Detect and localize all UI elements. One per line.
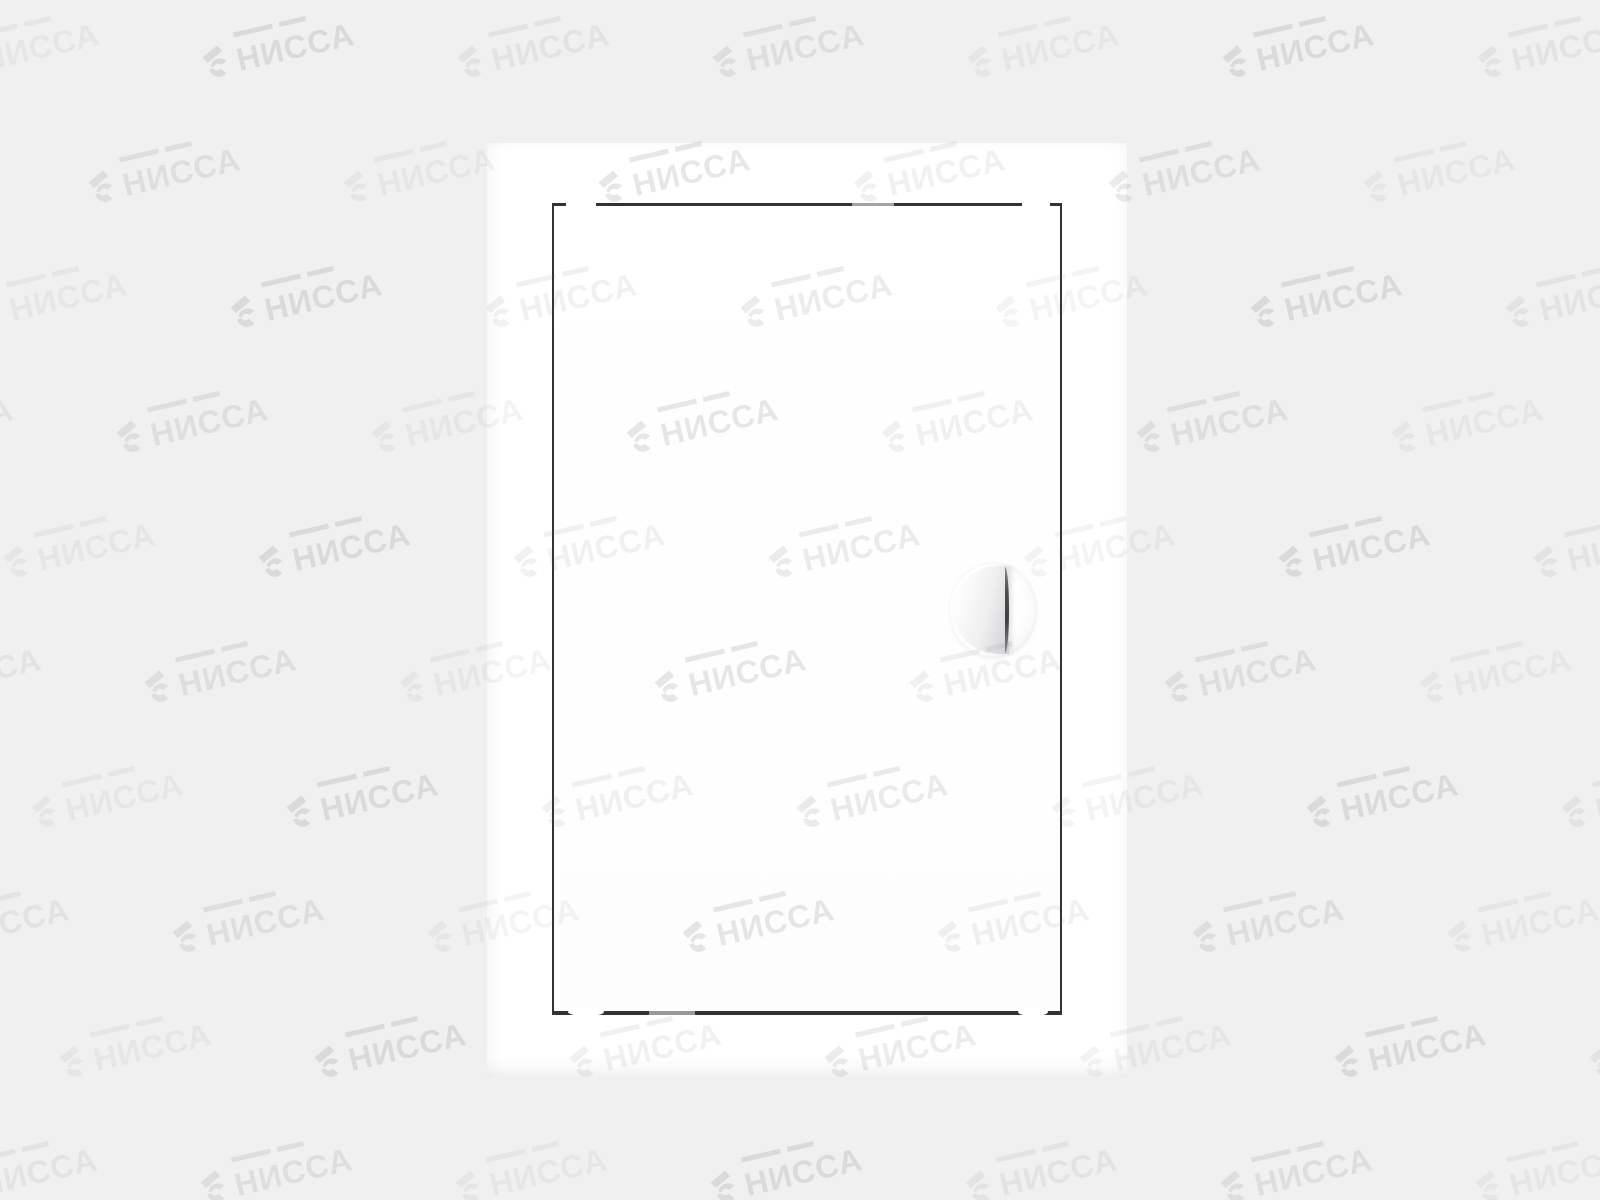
watermark-bar xyxy=(0,16,51,37)
watermark-bar xyxy=(203,891,276,912)
watermark-tile: НИССА xyxy=(0,383,16,459)
watermark-text: НИССА xyxy=(1282,268,1406,326)
watermark-tile: НИССА xyxy=(195,1133,355,1200)
watermark-tile: НИССА xyxy=(0,633,44,709)
nissa-logo-icon xyxy=(395,663,433,709)
watermark-text: НИССА xyxy=(1423,393,1547,451)
nissa-logo-icon xyxy=(84,163,122,209)
watermark-tile: НИССА xyxy=(1472,8,1600,84)
nissa-logo-icon xyxy=(254,538,292,584)
nissa-logo-icon xyxy=(1132,413,1170,459)
watermark-text: НИССА xyxy=(1395,143,1519,201)
watermark-bar xyxy=(1281,266,1354,287)
watermark-bar xyxy=(345,1016,418,1037)
nissa-logo-icon xyxy=(55,1038,93,1084)
watermark-tile: НИССА xyxy=(253,508,413,584)
nissa-logo-icon xyxy=(1330,1038,1368,1084)
watermark-text: НИССА xyxy=(1338,768,1462,826)
watermark-tile: НИССА xyxy=(1470,1133,1600,1200)
nissa-logo-icon xyxy=(1359,163,1397,209)
nissa-logo-icon xyxy=(1387,413,1425,459)
watermark-tile: НИССА xyxy=(705,1133,865,1200)
watermark-bar xyxy=(1592,766,1600,787)
watermark-text: НИССА xyxy=(1254,18,1378,76)
nissa-logo-icon xyxy=(1302,788,1340,834)
watermark-bar xyxy=(233,16,306,37)
watermark-tile: НИССА xyxy=(281,758,441,834)
nissa-logo-icon xyxy=(1415,663,1453,709)
watermark-bar xyxy=(0,1141,49,1162)
watermark-text: НИССА xyxy=(1168,393,1292,451)
watermark-text: НИССА xyxy=(1366,1018,1490,1076)
watermark-bar xyxy=(374,141,447,162)
nissa-logo-icon xyxy=(367,413,405,459)
watermark-text: НИССА xyxy=(1310,518,1434,576)
nissa-logo-icon xyxy=(310,1038,348,1084)
watermark-bar xyxy=(1536,266,1600,287)
watermark-bar xyxy=(317,766,390,787)
watermark-tile: НИССА xyxy=(1386,383,1546,459)
watermark-tile: НИССА xyxy=(1358,133,1518,209)
watermark-text: НИССА xyxy=(487,1143,611,1200)
watermark-text: НИССА xyxy=(1140,143,1264,201)
watermark-tile: НИССА xyxy=(1215,1133,1375,1200)
watermark-text: НИССА xyxy=(204,893,328,951)
watermark-bar xyxy=(1167,391,1240,412)
nissa-logo-icon xyxy=(423,913,461,959)
watermark-tile: НИССА xyxy=(1500,258,1600,334)
watermark-tile: НИССА xyxy=(26,758,186,834)
nissa-logo-icon xyxy=(0,538,37,584)
watermark-tile: НИССА xyxy=(1217,8,1377,84)
nissa-logo-icon xyxy=(706,1163,744,1200)
nissa-logo-icon xyxy=(226,288,264,334)
watermark-text: НИССА xyxy=(262,268,386,326)
watermark-tile: НИССА xyxy=(1159,633,1319,709)
seam-highlight xyxy=(649,1010,695,1016)
watermark-tile: НИССА xyxy=(197,8,357,84)
watermark-bar xyxy=(231,1141,304,1162)
seam-highlight xyxy=(1022,202,1050,208)
nissa-logo-icon xyxy=(708,38,746,84)
watermark-text: НИССА xyxy=(232,1143,356,1200)
nissa-logo-icon xyxy=(451,1163,489,1200)
nissa-logo-icon xyxy=(198,38,236,84)
watermark-text: НИССА xyxy=(176,643,300,701)
watermark-text: НИССА xyxy=(1224,893,1348,951)
watermark-tile: НИССА xyxy=(1103,133,1263,209)
watermark-bar xyxy=(1564,516,1600,537)
watermark-bar xyxy=(1422,391,1495,412)
watermark-text: НИССА xyxy=(0,643,44,701)
watermark-tile: НИССА xyxy=(54,1008,214,1084)
watermark-text: НИССА xyxy=(0,18,102,76)
watermark-text: НИССА xyxy=(1479,893,1600,951)
nissa-logo-icon xyxy=(27,788,65,834)
watermark-tile: НИССА xyxy=(1584,1008,1600,1084)
watermark-text: НИССА xyxy=(0,893,72,951)
watermark-bar xyxy=(119,141,192,162)
watermark-tile: НИССА xyxy=(167,883,327,959)
watermark-tile: НИССА xyxy=(0,8,102,84)
watermark-tile: НИССА xyxy=(83,133,243,209)
nissa-logo-icon xyxy=(1501,288,1539,334)
image-canvas: НИССАНИССАНИССАНИССАНИССАНИССАНИССАНИССА… xyxy=(0,0,1600,1200)
watermark-text: НИССА xyxy=(1451,643,1575,701)
nissa-logo-icon xyxy=(961,1163,999,1200)
seam-highlight xyxy=(566,202,596,208)
watermark-text: НИССА xyxy=(489,18,613,76)
watermark-text: НИССА xyxy=(375,143,499,201)
watermark-text: НИССА xyxy=(290,518,414,576)
watermark-text: НИССА xyxy=(35,518,159,576)
nissa-logo-icon xyxy=(1585,1038,1600,1084)
nissa-logo-icon xyxy=(339,163,377,209)
watermark-bar xyxy=(1394,141,1467,162)
watermark-tile: НИССА xyxy=(1414,633,1574,709)
watermark-bar xyxy=(1337,766,1410,787)
watermark-text: НИССА xyxy=(0,393,16,451)
watermark-text: НИССА xyxy=(997,1143,1121,1200)
watermark-bar xyxy=(998,16,1071,37)
watermark-bar xyxy=(34,516,107,537)
nissa-logo-icon xyxy=(196,1163,234,1200)
nissa-logo-icon xyxy=(282,788,320,834)
watermark-text: НИССА xyxy=(318,768,442,826)
watermark-tile: НИССА xyxy=(0,258,130,334)
nissa-logo-icon xyxy=(453,38,491,84)
watermark-text: НИССА xyxy=(148,393,272,451)
nissa-logo-icon xyxy=(1216,1163,1254,1200)
nissa-logo-icon xyxy=(1557,788,1595,834)
watermark-tile: НИССА xyxy=(309,1008,469,1084)
nissa-logo-icon xyxy=(1274,538,1312,584)
watermark-bar xyxy=(1251,1141,1324,1162)
watermark-text: НИССА xyxy=(1509,18,1600,76)
watermark-text: НИССА xyxy=(120,143,244,201)
watermark-bar xyxy=(1478,891,1551,912)
watermark-bar xyxy=(1195,641,1268,662)
watermark-bar xyxy=(1253,16,1326,37)
nissa-logo-icon xyxy=(1188,913,1226,959)
watermark-bar xyxy=(488,16,561,37)
watermark-tile: НИССА xyxy=(0,1133,100,1200)
watermark-bar xyxy=(1223,891,1296,912)
watermark-bar xyxy=(1139,141,1212,162)
watermark-tile: НИССА xyxy=(707,8,867,84)
watermark-tile: НИССА xyxy=(1442,883,1600,959)
watermark-bar xyxy=(261,266,334,287)
watermark-text: НИССА xyxy=(1565,518,1600,576)
nissa-logo-icon xyxy=(112,413,150,459)
watermark-text: НИССА xyxy=(1111,1018,1235,1076)
watermark-text: НИССА xyxy=(7,268,131,326)
watermark-tile: НИССА xyxy=(111,383,271,459)
watermark-bar xyxy=(0,891,21,912)
watermark-tile: НИССА xyxy=(225,258,385,334)
watermark-bar xyxy=(1309,516,1382,537)
watermark-text: НИССА xyxy=(744,18,868,76)
nissa-logo-icon xyxy=(140,663,178,709)
watermark-tile: НИССА xyxy=(1556,758,1600,834)
watermark-bar xyxy=(289,516,362,537)
watermark-bar xyxy=(1508,16,1581,37)
watermark-text: НИССА xyxy=(1507,1143,1600,1200)
watermark-tile: НИССА xyxy=(1273,508,1433,584)
watermark-text: НИССА xyxy=(1593,768,1600,826)
watermark-tile: НИССА xyxy=(1528,508,1600,584)
watermark-text: НИССА xyxy=(999,18,1123,76)
nissa-logo-icon xyxy=(1473,38,1511,84)
watermark-text: НИССА xyxy=(742,1143,866,1200)
seam-highlight xyxy=(1018,1008,1048,1016)
seam-highlight xyxy=(568,1008,604,1016)
watermark-bar xyxy=(996,1141,1069,1162)
watermark-bar xyxy=(486,1141,559,1162)
watermark-tile: НИССА xyxy=(139,633,299,709)
nissa-logo-icon xyxy=(1218,38,1256,84)
watermark-tile: НИССА xyxy=(1301,758,1461,834)
watermark-text: НИССА xyxy=(234,18,358,76)
nissa-logo-icon xyxy=(1471,1163,1509,1200)
handle-grip xyxy=(952,566,1009,654)
product-photo xyxy=(487,143,1127,1077)
watermark-bar xyxy=(1506,1141,1579,1162)
nissa-logo-icon xyxy=(963,38,1001,84)
watermark-tile: НИССА xyxy=(452,8,612,84)
watermark-bar xyxy=(6,266,79,287)
watermark-tile: НИССА xyxy=(1329,1008,1489,1084)
watermark-text: НИССА xyxy=(0,1143,100,1200)
handle-grip-edge xyxy=(1005,567,1009,653)
watermark-tile: НИССА xyxy=(1131,383,1291,459)
nissa-logo-icon xyxy=(1529,538,1567,584)
watermark-text: НИССА xyxy=(1196,643,1320,701)
nissa-logo-icon xyxy=(168,913,206,959)
watermark-bar xyxy=(147,391,220,412)
watermark-tile: НИССА xyxy=(962,8,1122,84)
nissa-logo-icon xyxy=(1160,663,1198,709)
watermark-tile: НИССА xyxy=(450,1133,610,1200)
watermark-bar xyxy=(743,16,816,37)
nissa-logo-icon xyxy=(0,288,9,334)
seam-highlight xyxy=(852,202,894,207)
watermark-bar xyxy=(90,1016,163,1037)
watermark-tile: НИССА xyxy=(338,133,498,209)
watermark-bar xyxy=(62,766,135,787)
handle-recess xyxy=(949,562,1037,658)
watermark-text: НИССА xyxy=(346,1018,470,1076)
watermark-bar xyxy=(1450,641,1523,662)
watermark-tile: НИССА xyxy=(0,508,158,584)
watermark-text: НИССА xyxy=(1252,1143,1376,1200)
nissa-logo-icon xyxy=(1246,288,1284,334)
watermark-bar xyxy=(741,1141,814,1162)
watermark-bar xyxy=(1365,1016,1438,1037)
watermark-bar xyxy=(402,391,475,412)
watermark-text: НИССА xyxy=(63,768,187,826)
watermark-text: НИССА xyxy=(91,1018,215,1076)
watermark-tile: НИССА xyxy=(1245,258,1405,334)
watermark-tile: НИССА xyxy=(960,1133,1120,1200)
watermark-bar xyxy=(175,641,248,662)
nissa-logo-icon xyxy=(1443,913,1481,959)
watermark-text: НИССА xyxy=(1537,268,1600,326)
watermark-tile: НИССА xyxy=(0,883,72,959)
watermark-tile: НИССА xyxy=(1187,883,1347,959)
